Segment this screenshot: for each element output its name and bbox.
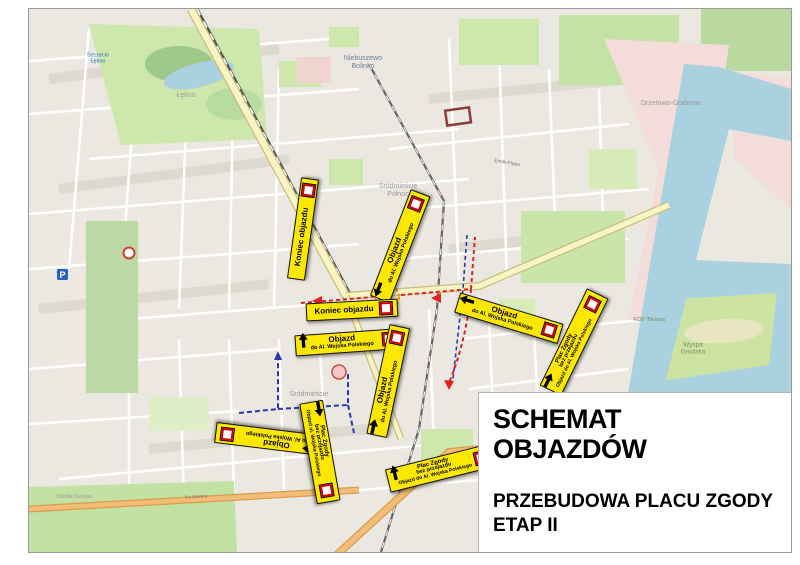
subtitle-line2: ETAP II — [493, 515, 558, 536]
road-closed-badge-icon — [408, 196, 424, 212]
scheme-title: SCHEMAT OBJAZDÓW — [493, 405, 781, 464]
road-closed-badge-icon — [380, 302, 393, 315]
road-closed-badge-icon — [320, 483, 334, 497]
hospital-icon — [332, 365, 346, 379]
road-closed-badge-icon — [390, 331, 404, 345]
scheme-subtitle: PRZEBUDOWA PLACU ZGODY ETAP II — [493, 490, 781, 538]
poi-icon — [124, 248, 135, 259]
road-closed-badge-icon — [302, 184, 316, 198]
svg-text:P: P — [59, 270, 65, 280]
legend-title-box: SCHEMAT OBJAZDÓW PRZEBUDOWA PLACU ZGODY … — [478, 392, 791, 552]
detour-label-text: Objazddo Al. Wojska Polskiego — [305, 333, 380, 353]
road-closed-badge-icon — [542, 323, 557, 338]
subtitle-line1: PRZEBUDOWA PLACU ZGODY — [493, 491, 773, 512]
road-closed-badge-icon — [584, 296, 600, 312]
city-map: P NiebuszewoBolinkoŚródmieśc — [28, 8, 792, 553]
detour-label-text: Koniec objazdu — [312, 304, 376, 316]
road-closed-badge-icon — [221, 427, 234, 440]
